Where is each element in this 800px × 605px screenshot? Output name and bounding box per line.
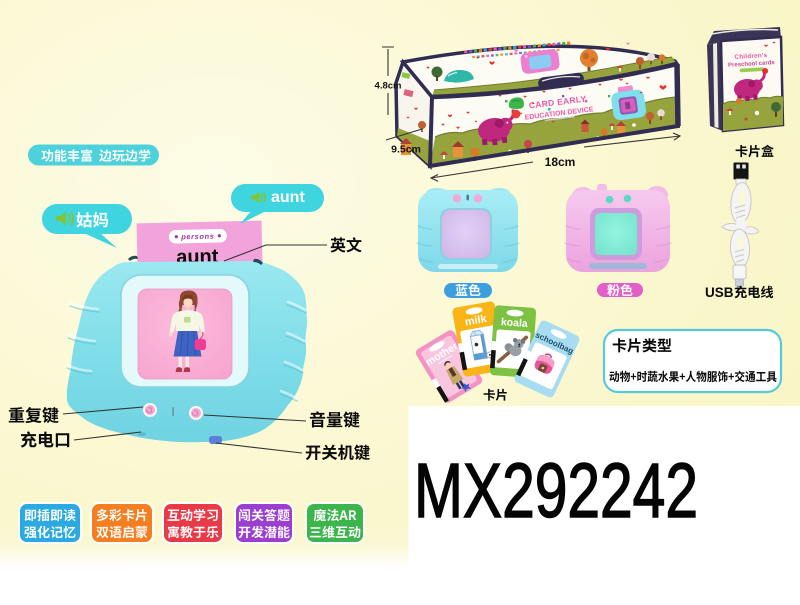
svg-text:USB: USB (705, 285, 734, 300)
svg-text:aunt: aunt (271, 189, 305, 206)
svg-text:MX292242: MX292242 (414, 448, 698, 534)
svg-text:9.5cm: 9.5cm (391, 144, 421, 156)
svg-text:koala: koala (500, 316, 528, 330)
svg-text:4.8cm: 4.8cm (375, 81, 402, 92)
svg-text:persons: persons (180, 232, 215, 242)
svg-text:18cm: 18cm (545, 155, 576, 169)
